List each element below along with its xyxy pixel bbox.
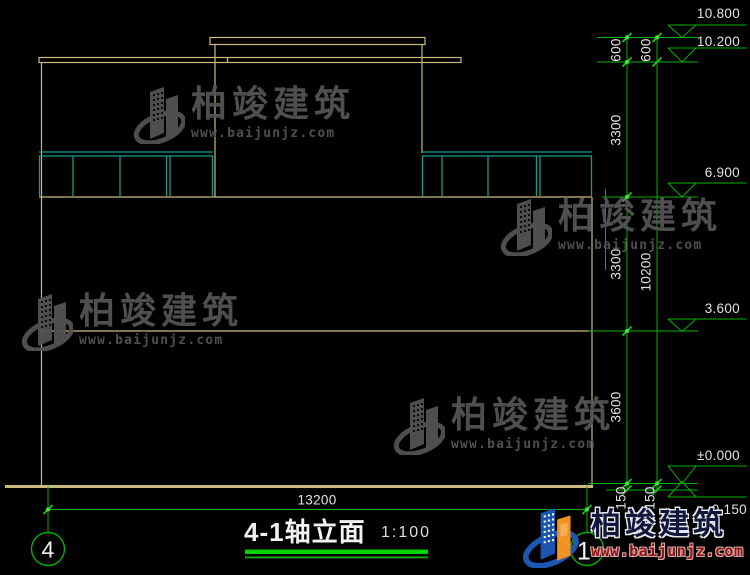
watermark-brand: 柏竣建筑 <box>79 293 243 329</box>
brand-logo: 柏竣建筑 www.baijunjz.com <box>517 504 744 568</box>
level-label-parapet: 10.200 <box>697 35 740 49</box>
watermark-brand: 柏竣建筑 <box>451 397 615 433</box>
drawing-scale: 1:100 <box>381 525 431 541</box>
level-markers <box>668 25 747 497</box>
watermark-brand: 柏竣建筑 <box>191 86 355 122</box>
watermark-block-2: 柏竣建筑 www.baijunjz.com <box>500 196 722 256</box>
title-underline-thin <box>245 557 428 559</box>
watermark-logo-icon <box>500 196 552 256</box>
watermark-block-4: 柏竣建筑 www.baijunjz.com <box>393 395 615 455</box>
axis-number-1: 1 <box>577 540 591 565</box>
dim-label-600-inner: 600 <box>609 38 623 61</box>
brand-logo-website: www.baijunjz.com <box>591 542 744 560</box>
dim-label-10200: 10200 <box>639 252 653 291</box>
watermark-website: www.baijunjz.com <box>451 437 615 452</box>
watermark-website: www.baijunjz.com <box>558 238 722 253</box>
drawing-title: 4-1轴立面 <box>244 519 366 545</box>
dim-label-3300-upper: 3300 <box>609 114 623 145</box>
dim-label-3300-lower: 3300 <box>609 248 623 279</box>
watermark-logo-icon <box>393 395 445 455</box>
dim-label-3600: 3600 <box>609 391 623 422</box>
level-label-floor2: 3.600 <box>705 302 740 316</box>
watermark-block-1: 柏竣建筑 www.baijunjz.com <box>133 84 355 144</box>
parapet-coping <box>39 58 461 63</box>
cad-elevation-drawing: 10.800 10.200 6.900 3.600 ±0.000 -0.150 … <box>0 0 750 575</box>
stair-bulkhead-roof <box>210 38 425 45</box>
level-label-ground: ±0.000 <box>697 449 740 463</box>
level-label-roof-top: 10.800 <box>697 7 740 21</box>
watermark-logo-icon <box>133 84 185 144</box>
dim-label-600-outer: 600 <box>639 38 653 61</box>
title-underline-thick <box>245 550 428 555</box>
brand-logo-name: 柏竣建筑 <box>591 510 744 540</box>
watermark-logo-icon <box>21 291 73 351</box>
watermark-brand: 柏竣建筑 <box>558 198 722 234</box>
level-label-roof: 6.900 <box>705 166 740 180</box>
roof-railings <box>39 152 592 196</box>
dim-label-13200: 13200 <box>297 493 336 507</box>
watermark-website: www.baijunjz.com <box>79 333 243 348</box>
watermark-block-3: 柏竣建筑 www.baijunjz.com <box>21 291 243 351</box>
watermark-website: www.baijunjz.com <box>191 126 355 141</box>
axis-number-4: 4 <box>41 539 54 562</box>
